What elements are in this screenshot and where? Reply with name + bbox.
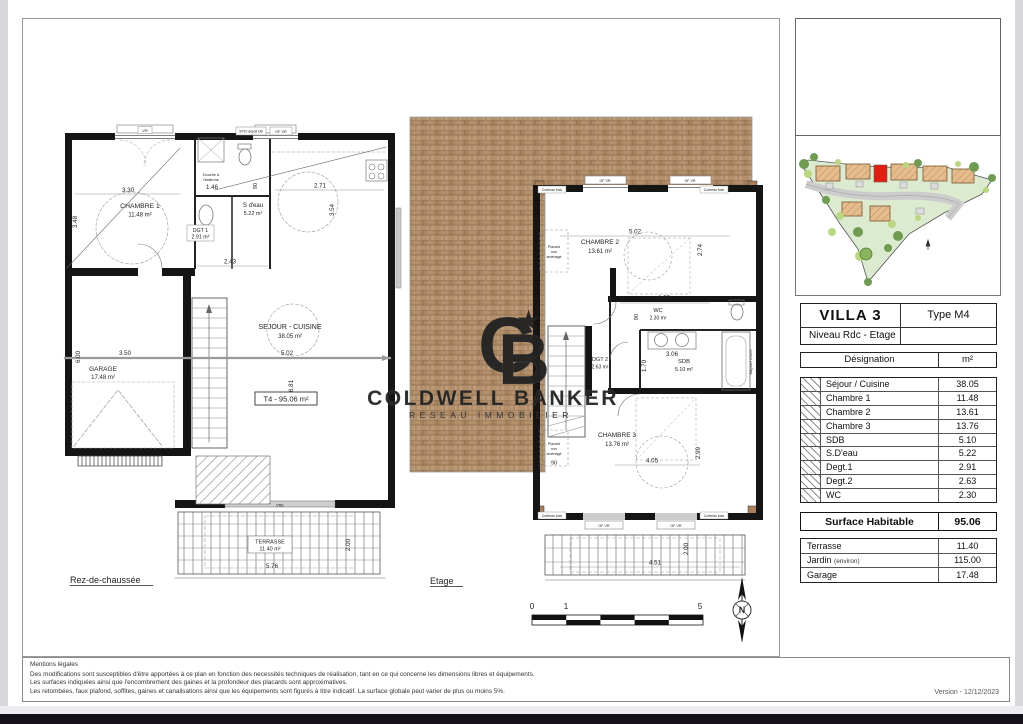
ground-floor-plan: VR SP10 dépoli OB GF VR VRE CHAMBRE 1 11…: [65, 125, 401, 586]
window-label: GF VR: [671, 524, 682, 528]
corbel-label: Corbeau bois: [542, 514, 562, 518]
watermark-brand: COLDWELL BANKER: [367, 387, 619, 410]
room-label-dgt2: DGT 2: [592, 357, 608, 363]
room-value-cell: 38.05: [938, 378, 996, 391]
hatch-cell: [801, 392, 821, 405]
watermark-star-icon: ★: [516, 305, 541, 336]
extra-value-cell: 11.40: [938, 539, 996, 553]
table-row: Séjour / Cuisine 38.05: [801, 378, 996, 392]
room-name-cell: Séjour / Cuisine: [821, 378, 938, 391]
table-row: Chambre 2 13.61: [801, 406, 996, 420]
dimension-label: 4.51: [649, 560, 662, 567]
closet-label: aménagé: [547, 452, 562, 456]
scale-bar: 0 1 5: [530, 602, 703, 625]
dimension-label: 6.00: [75, 350, 82, 363]
villa-level: Niveau Rdc - Etage: [801, 328, 900, 344]
room-label-garage: GARAGE: [89, 366, 117, 373]
dimension-label: 3.54: [329, 203, 336, 216]
villa-level-empty-cell: [900, 328, 996, 344]
window-label: VRE: [276, 504, 284, 508]
dimension-label: 2.43: [224, 259, 237, 266]
watermark-tagline: RESEAU IMMOBILIER: [409, 410, 573, 420]
table-row: Jardin (environ) 115.00: [801, 554, 996, 569]
north-label: N: [739, 605, 746, 615]
upper-floor-title: Etage: [430, 576, 454, 586]
dimension-label: 2.00: [345, 538, 352, 551]
room-label-chambre1: CHAMBRE 1: [120, 203, 160, 210]
room-area-dgt2: 2.63 m²: [592, 365, 609, 371]
room-value-cell: 5.10: [938, 434, 996, 447]
hatch-cell: [801, 434, 821, 447]
scale-tick-1: 1: [564, 602, 569, 611]
surface-table-header: Désignation m²: [800, 352, 997, 368]
viewer-taskbar: [0, 714, 1023, 724]
room-label-wc: WC: [653, 308, 662, 314]
room-label-chambre3: CHAMBRE 3: [598, 432, 636, 439]
dimension-label: 4.05: [646, 458, 659, 465]
dimension-label: 3.06: [666, 351, 679, 358]
column-designation: Désignation: [801, 353, 938, 367]
hatch-cell: [801, 406, 821, 419]
floorplan-sheet: VR SP10 dépoli OB GF VR VRE CHAMBRE 1 11…: [22, 18, 780, 657]
villa-type: Type M4: [900, 304, 996, 327]
site-plan-map: [796, 136, 1000, 294]
room-label-chambre2: CHAMBRE 2: [581, 239, 619, 246]
corbel-label: Corbeau bois: [704, 514, 724, 518]
hatch-cell: [801, 489, 821, 502]
room-area-sdeau: 5.22 m²: [244, 211, 263, 217]
dimension-label: 2.74: [697, 243, 704, 256]
scale-tick-5: 5: [698, 602, 703, 611]
plan-document: VR SP10 dépoli OB GF VR VRE CHAMBRE 1 11…: [0, 0, 1023, 724]
dimension-label: 90: [551, 461, 557, 467]
room-name-cell: Degt.1: [821, 461, 938, 474]
table-row: Terrasse 11.40: [801, 539, 996, 554]
surface-table-extras: Terrasse 11.40 Jardin (environ) 115.00 G…: [800, 538, 997, 583]
hatch-cell: [801, 447, 821, 460]
table-row: Garage 17.48: [801, 568, 996, 582]
room-label-douche2: l'italienne: [203, 178, 219, 182]
room-name-cell: Degt.2: [821, 475, 938, 488]
room-value-cell: 11.48: [938, 392, 996, 405]
room-name-cell: Chambre 1: [821, 392, 938, 405]
dimension-label: 6.81: [288, 379, 295, 392]
legal-mentions: Mentions légales Des modifications sont …: [22, 657, 1010, 702]
closet-label: non: [551, 250, 557, 254]
legal-title: Mentions légales: [30, 661, 1002, 670]
dimension-label: 3.50: [119, 350, 132, 357]
closet-label: aménagé: [547, 255, 562, 259]
extra-name-cell: Garage: [801, 568, 938, 582]
room-area-dgt1: 2.91 m²: [192, 235, 210, 241]
version-label: Version - 12/12/2023: [934, 688, 999, 697]
room-label-sejour: SEJOUR - CUISINE: [258, 324, 321, 331]
dimension-label: 5.02: [281, 350, 294, 357]
table-row: Chambre 1 11.48: [801, 392, 996, 406]
corbel-label: Corbeau bois: [542, 188, 562, 192]
column-unit: m²: [938, 353, 996, 367]
room-area-wc: 2.30 m²: [650, 316, 667, 322]
room-name-cell: Chambre 2: [821, 406, 938, 419]
table-row: Degt.2 2.63: [801, 475, 996, 489]
hatch-cell: [801, 420, 821, 433]
window-label: GF VR: [685, 179, 696, 183]
room-label-dgt1: DGT 1: [193, 228, 209, 234]
dimension-label: 2.71: [314, 183, 327, 190]
surface-habitable-row: Surface Habitable 95.06: [800, 512, 997, 531]
room-area-terrasse: 11.40 m²: [259, 547, 280, 553]
extra-value-cell: 17.48: [938, 568, 996, 582]
table-row: WC 2.30: [801, 489, 996, 502]
room-value-cell: 13.61: [938, 406, 996, 419]
villa-title: VILLA 3: [801, 304, 900, 327]
room-label-terrasse: TERRASSE: [255, 540, 285, 546]
table-row: S.D'eau 5.22: [801, 447, 996, 461]
dimension-label: 2.99: [695, 446, 702, 459]
dimension-label: 5.02: [629, 229, 642, 236]
surface-table-title-block: VILLA 3 Type M4 Niveau Rdc - Etage: [800, 303, 997, 345]
room-value-cell: 2.63: [938, 475, 996, 488]
room-label-sdb: SDB: [678, 359, 690, 365]
ground-floor-title: Rez-de-chaussée: [70, 575, 141, 585]
dimension-label: 5.76: [266, 563, 279, 570]
fixture-label: Baignoire 170x70: [749, 349, 753, 374]
right-panel: VILLA 3 Type M4 Niveau Rdc - Etage Désig…: [795, 18, 1001, 583]
room-name-cell: WC: [821, 489, 938, 502]
room-name-cell: SDB: [821, 434, 938, 447]
table-row: SDB 5.10: [801, 434, 996, 448]
room-area-chambre1: 11.48 m²: [128, 213, 151, 219]
room-area-chambre3: 13.76 m²: [605, 442, 629, 448]
table-row: Degt.1 2.91: [801, 461, 996, 475]
dimension-label: 2.55: [658, 295, 671, 302]
dimension-label: 1.70: [641, 359, 648, 372]
room-label-sdeau: S d'eau: [243, 203, 263, 209]
window-label: SP10 dépoli OB: [239, 130, 263, 134]
legal-line: Les surfaces indiquées ainsi que l'encom…: [30, 679, 1002, 688]
surface-habitable-value: 95.06: [938, 513, 996, 530]
extra-value-cell: 115.00: [938, 554, 996, 568]
window-label: VR: [142, 128, 148, 133]
site-plan-highlighted-villa: [874, 165, 887, 182]
type-surface-label: T4 - 95.06 m²: [263, 395, 309, 404]
room-value-cell: 2.30: [938, 489, 996, 502]
hatch-cell: [801, 461, 821, 474]
room-value-cell: 5.22: [938, 447, 996, 460]
room-label-douche: Douche à: [203, 173, 220, 177]
dimension-label: 90: [253, 183, 259, 189]
site-plan: [795, 136, 1001, 296]
legal-line: Les retombées, faux plafond, soffites, g…: [30, 688, 1002, 697]
window-label: GF VR: [600, 179, 611, 183]
title-block-logo-box: [795, 18, 1001, 136]
closet-label: Placard: [548, 442, 560, 446]
scale-tick-0: 0: [530, 602, 535, 611]
window-label: GF VR: [599, 524, 610, 528]
extra-name-cell: Terrasse: [801, 539, 938, 553]
surface-table-rooms: Séjour / Cuisine 38.05 Chambre 1 11.48 C…: [800, 377, 997, 503]
room-value-cell: 13.76: [938, 420, 996, 433]
corbel-label: Corbeau bois: [704, 188, 724, 192]
dimension-label: 3.48: [72, 215, 79, 228]
closet-label: Placard: [548, 245, 560, 249]
table-row: Chambre 3 13.76: [801, 420, 996, 434]
legal-line: Des modifications sont susceptibles d'êt…: [30, 671, 1002, 680]
room-area-chambre2: 13.61 m²: [588, 249, 612, 255]
dimension-label: 1.46: [206, 184, 219, 191]
room-name-cell: S.D'eau: [821, 447, 938, 460]
room-area-sejour: 38.05 m²: [278, 334, 302, 340]
surface-table: VILLA 3 Type M4 Niveau Rdc - Etage Désig…: [800, 303, 997, 583]
room-area-garage: 17.48 m²: [91, 375, 115, 381]
north-arrow-icon: N: [733, 577, 751, 643]
room-area-sdb: 5.10 m²: [675, 367, 693, 373]
window-label: GF VR: [275, 130, 287, 134]
closet-label: non: [551, 447, 557, 451]
room-value-cell: 2.91: [938, 461, 996, 474]
room-name-cell: Chambre 3: [821, 420, 938, 433]
hatch-cell: [801, 378, 821, 391]
dimension-label: 2.00: [683, 542, 690, 555]
dimension-label: 90: [634, 314, 640, 320]
hatch-cell: [801, 475, 821, 488]
surface-habitable-label: Surface Habitable: [801, 513, 938, 530]
dimension-label: 3.30: [122, 187, 135, 194]
extra-name-cell: Jardin (environ): [801, 554, 938, 568]
